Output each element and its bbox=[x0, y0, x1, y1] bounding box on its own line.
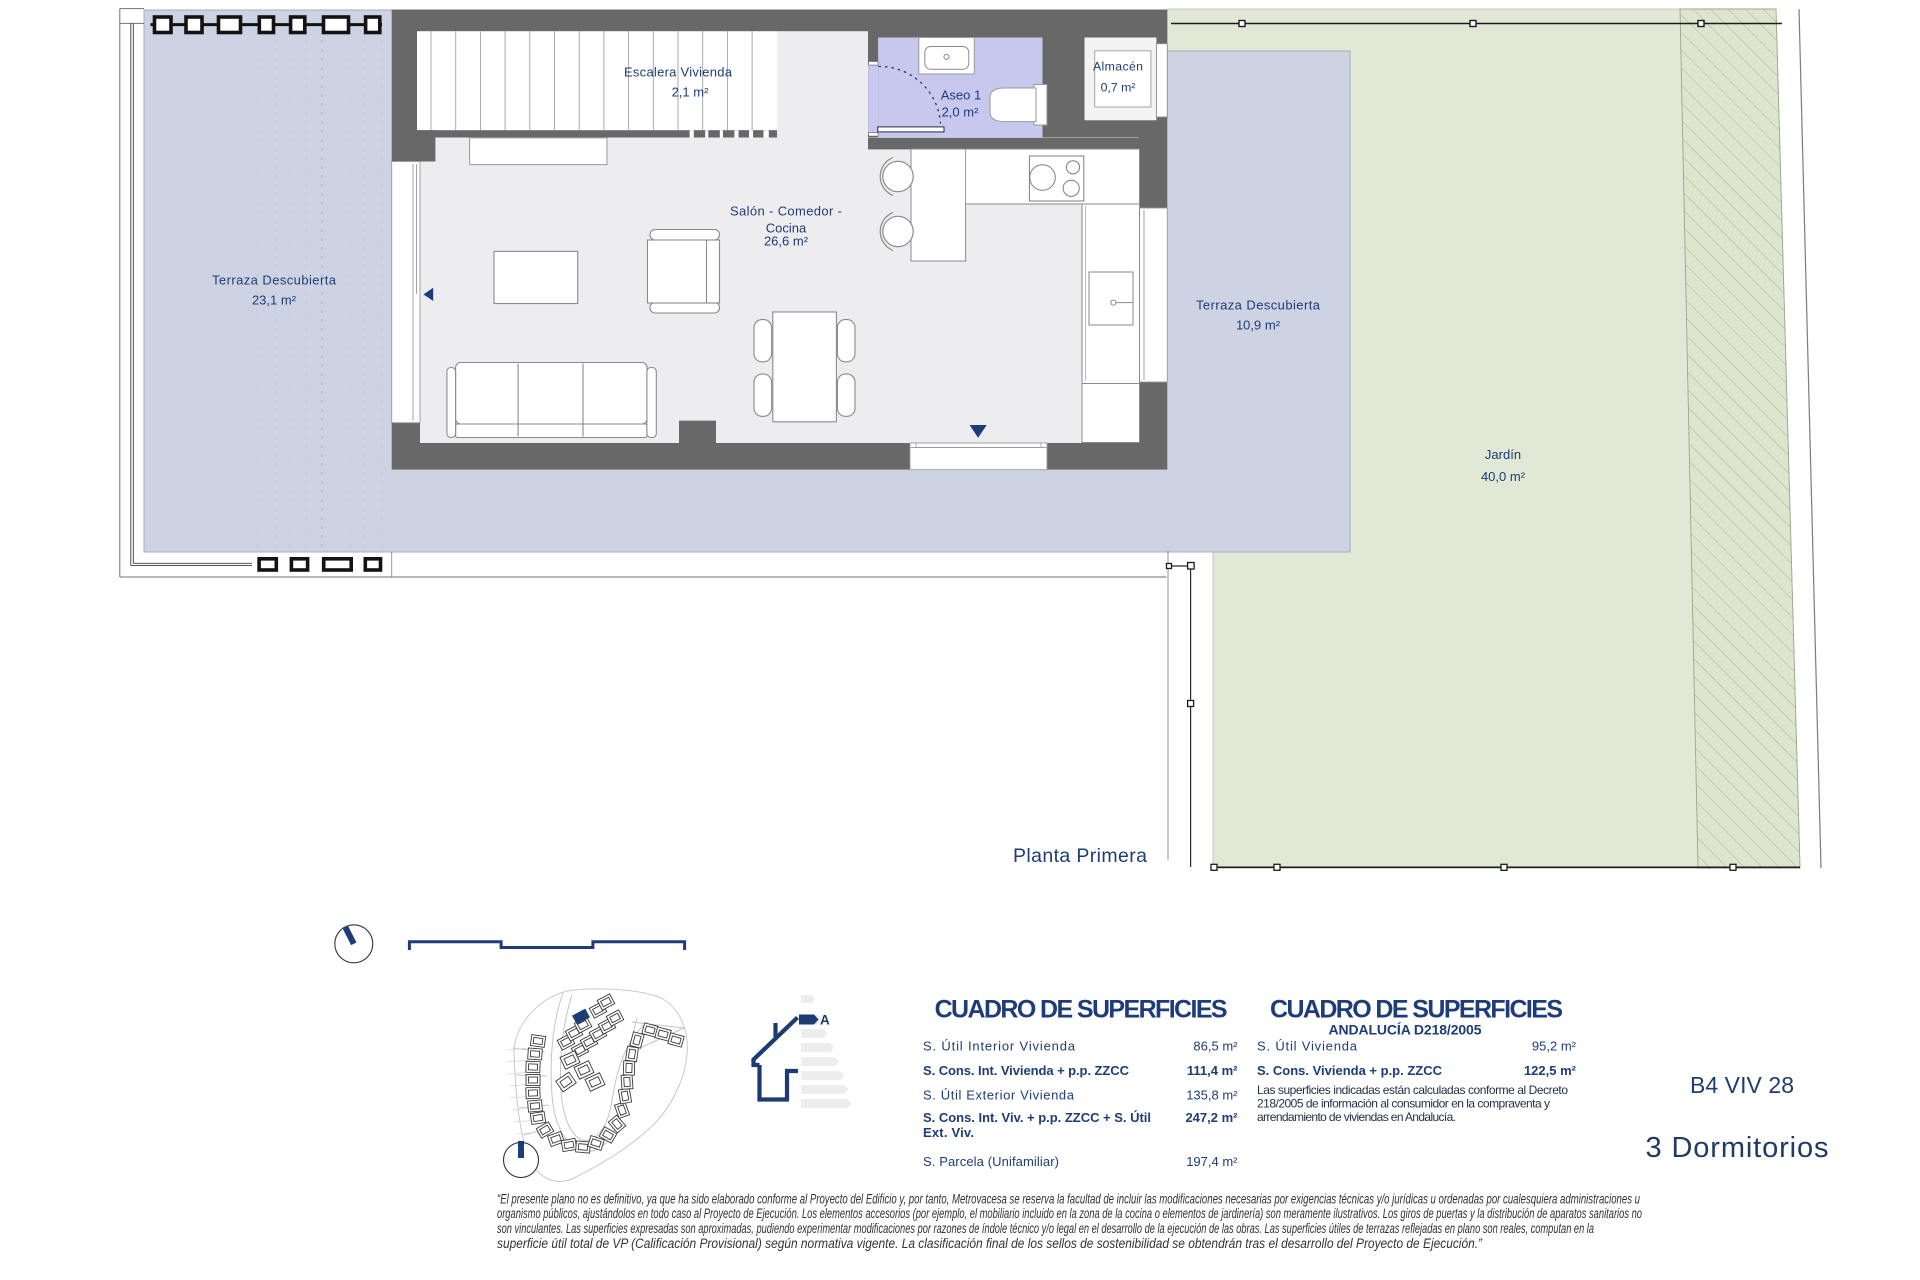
svg-text:10,9 m²: 10,9 m² bbox=[1236, 318, 1281, 333]
svg-text:95,2 m²: 95,2 m² bbox=[1532, 1038, 1577, 1053]
svg-text:Escalera Vivienda: Escalera Vivienda bbox=[624, 65, 733, 80]
svg-text:135,8 m²: 135,8 m² bbox=[1186, 1087, 1238, 1102]
svg-text:Las superficies indicadas está: Las superficies indicadas están calculad… bbox=[1257, 1083, 1568, 1097]
svg-text:Almacén: Almacén bbox=[1093, 60, 1143, 74]
svg-text:2,0 m²: 2,0 m² bbox=[942, 105, 980, 120]
svg-text:Terraza Descubierta: Terraza Descubierta bbox=[1196, 298, 1321, 313]
svg-text:A: A bbox=[820, 1013, 830, 1028]
svg-text:S. Útil Interior Vivienda: S. Útil Interior Vivienda bbox=[923, 1038, 1076, 1053]
svg-text:S. Parcela (Unifamiliar): S. Parcela (Unifamiliar) bbox=[923, 1154, 1059, 1169]
svg-text:S. Cons. Int. Vivienda + p.p.: S. Cons. Int. Vivienda + p.p. ZZCC bbox=[923, 1063, 1130, 1078]
svg-text:S. Útil Exterior Vivienda: S. Útil Exterior Vivienda bbox=[923, 1087, 1075, 1102]
svg-text:ANDALUCÍA D218/2005: ANDALUCÍA D218/2005 bbox=[1329, 1022, 1482, 1038]
svg-text:218/2005 de información al con: 218/2005 de información al consumidor en… bbox=[1257, 1097, 1550, 1111]
svg-text:3 Dormitorios: 3 Dormitorios bbox=[1646, 1132, 1829, 1164]
svg-text:S. Cons. Int. Viv. + p.p. ZZCC: S. Cons. Int. Viv. + p.p. ZZCC + S. Útil bbox=[923, 1110, 1151, 1125]
svg-text:S. Útil Vivienda: S. Útil Vivienda bbox=[1257, 1038, 1358, 1053]
svg-text:86,5 m²: 86,5 m² bbox=[1193, 1038, 1238, 1053]
svg-text:40,0 m²: 40,0 m² bbox=[1481, 469, 1526, 484]
svg-text:CUADRO DE SUPERFICIES: CUADRO DE SUPERFICIES bbox=[1270, 995, 1563, 1023]
svg-text:“El presente plano no es defin: “El presente plano no es definitivo, ya … bbox=[497, 1191, 1640, 1206]
svg-text:organismo públicos, ajustándol: organismo públicos, ajustándolos en todo… bbox=[497, 1206, 1642, 1221]
svg-text:son vinculantes. Las superfici: son vinculantes. Las superficies expresa… bbox=[497, 1221, 1594, 1236]
svg-text:Planta Primera: Planta Primera bbox=[1013, 845, 1147, 867]
svg-text:B4 VIV 28: B4 VIV 28 bbox=[1690, 1072, 1794, 1098]
svg-text:26,6 m²: 26,6 m² bbox=[764, 234, 809, 249]
svg-text:arrendamiento de viviendas en: arrendamiento de viviendas en Andalucía. bbox=[1257, 1110, 1456, 1124]
svg-text:Jardín: Jardín bbox=[1485, 447, 1521, 462]
svg-text:247,2 m²: 247,2 m² bbox=[1185, 1110, 1238, 1125]
svg-text:2,1 m²: 2,1 m² bbox=[672, 85, 710, 100]
svg-text:Terraza Descubierta: Terraza Descubierta bbox=[212, 273, 337, 288]
svg-text:CUADRO DE SUPERFICIES: CUADRO DE SUPERFICIES bbox=[935, 995, 1228, 1023]
svg-text:23,1 m²: 23,1 m² bbox=[252, 293, 297, 308]
svg-text:Ext. Viv.: Ext. Viv. bbox=[923, 1125, 974, 1140]
svg-text:superficie útil total de VP (C: superficie útil total de VP (Calificació… bbox=[497, 1236, 1482, 1251]
svg-text:0,7 m²: 0,7 m² bbox=[1101, 81, 1136, 95]
svg-text:S. Cons. Vivienda + p.p. ZZCC: S. Cons. Vivienda + p.p. ZZCC bbox=[1257, 1063, 1443, 1078]
svg-text:Salón - Comedor -: Salón - Comedor - bbox=[730, 204, 842, 219]
svg-text:197,4 m²: 197,4 m² bbox=[1186, 1154, 1238, 1169]
svg-text:111,4 m²: 111,4 m² bbox=[1187, 1063, 1238, 1078]
svg-text:122,5 m²: 122,5 m² bbox=[1524, 1063, 1577, 1078]
svg-text:Aseo 1: Aseo 1 bbox=[941, 88, 981, 103]
